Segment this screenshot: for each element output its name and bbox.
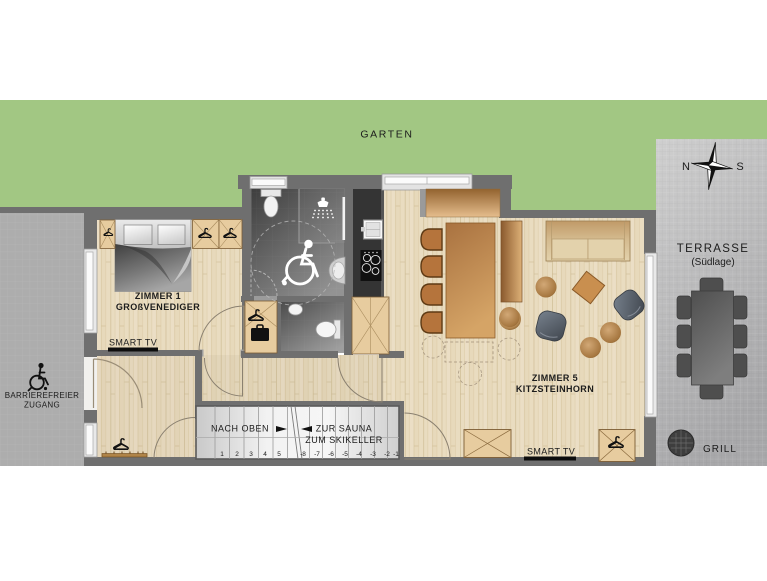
svg-text:BARRIEREFREIER: BARRIEREFREIER bbox=[5, 391, 79, 400]
svg-text:-5: -5 bbox=[342, 451, 348, 458]
svg-text:4: 4 bbox=[263, 451, 267, 458]
svg-text:-7: -7 bbox=[314, 451, 320, 458]
svg-text:2: 2 bbox=[235, 451, 239, 458]
svg-text:1: 1 bbox=[220, 451, 224, 458]
svg-text:3: 3 bbox=[249, 451, 253, 458]
svg-text:S: S bbox=[736, 161, 743, 173]
svg-text:NACH OBEN: NACH OBEN bbox=[211, 424, 269, 434]
svg-text:(Südlage): (Südlage) bbox=[691, 257, 734, 268]
svg-text:SMART TV: SMART TV bbox=[527, 447, 575, 457]
svg-text:KITZSTEINHORN: KITZSTEINHORN bbox=[516, 384, 594, 394]
svg-text:5: 5 bbox=[277, 451, 281, 458]
svg-text:-3: -3 bbox=[370, 451, 376, 458]
svg-text:-2: -2 bbox=[384, 451, 390, 458]
svg-text:ZUGANG: ZUGANG bbox=[24, 401, 60, 410]
svg-text:GARTEN: GARTEN bbox=[360, 129, 413, 141]
svg-text:-6: -6 bbox=[328, 451, 334, 458]
svg-text:-8: -8 bbox=[300, 451, 306, 458]
svg-text:GROßVENEDIGER: GROßVENEDIGER bbox=[116, 302, 200, 312]
svg-text:N: N bbox=[682, 161, 690, 173]
svg-text:ZUR SAUNA: ZUR SAUNA bbox=[316, 424, 373, 434]
svg-text:ZIMMER 5: ZIMMER 5 bbox=[532, 373, 578, 383]
svg-text:SMART TV: SMART TV bbox=[109, 338, 157, 348]
svg-text:ZIMMER 1: ZIMMER 1 bbox=[135, 291, 181, 301]
svg-text:ZUM SKIKELLER: ZUM SKIKELLER bbox=[305, 435, 383, 445]
svg-text:GRILL: GRILL bbox=[703, 444, 737, 455]
svg-text:TERRASSE: TERRASSE bbox=[677, 243, 749, 255]
svg-text:-1: -1 bbox=[393, 451, 399, 458]
svg-text:-4: -4 bbox=[356, 451, 362, 458]
